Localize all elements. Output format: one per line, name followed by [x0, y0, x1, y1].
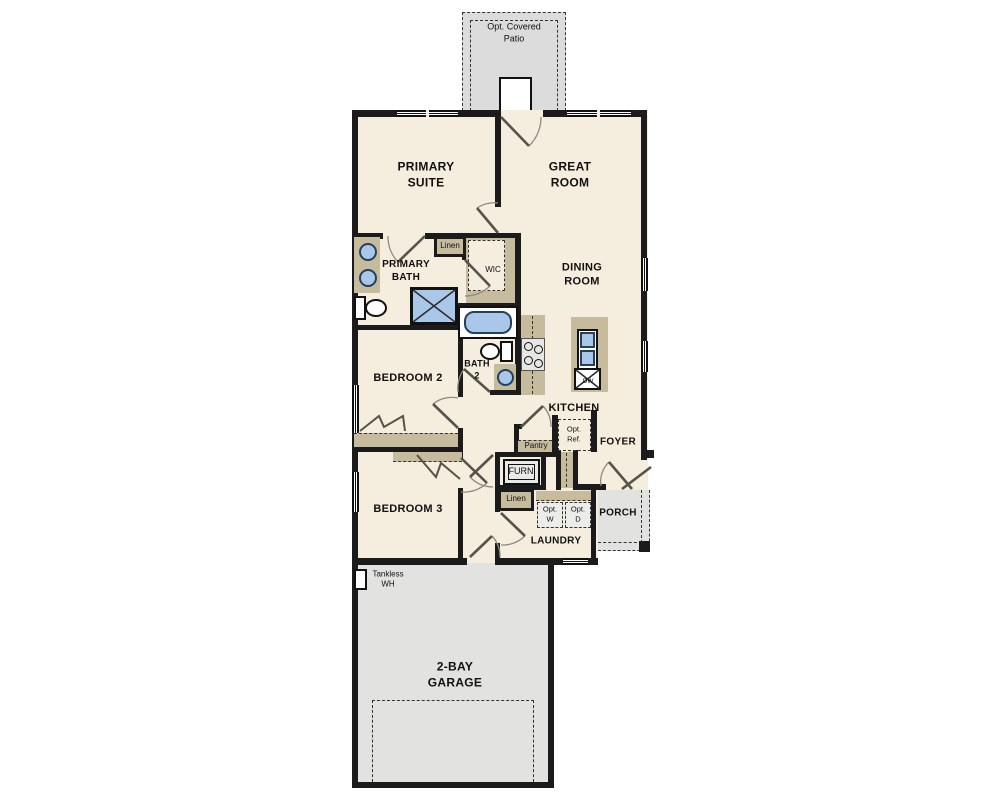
bedroom2-label: BEDROOM 2 [373, 371, 442, 385]
bath2-label: BATH 2 [464, 358, 490, 381]
primary-bath-label: PRIMARY BATH [382, 258, 430, 284]
furnace-label: FURN [509, 466, 534, 478]
pantry-label: Pantry [524, 441, 547, 451]
linen-top-label: Linen [440, 241, 460, 251]
primary-suite-label: PRIMARY SUITE [398, 159, 455, 190]
laundry-label: LAUNDRY [531, 535, 582, 548]
foyer-label: FOYER [600, 436, 636, 449]
wic-label: WIC [485, 265, 501, 275]
bedroom3-label: BEDROOM 3 [373, 502, 442, 516]
shower-x [413, 290, 455, 322]
tankless-label: Tankless WH [372, 570, 403, 591]
dishwasher-label: DW [583, 378, 594, 386]
garage-label: 2-BAY GARAGE [428, 659, 482, 690]
bifold-doors [360, 416, 460, 479]
opt-dryer-label: Opt. D [571, 504, 585, 524]
linen-bottom-label: Linen [506, 494, 526, 504]
annotation-layer [0, 0, 1000, 800]
porch-label: PORCH [599, 507, 637, 520]
opt-washer-label: Opt. W [543, 504, 557, 524]
opt-ref-label: Opt. Ref. [567, 424, 581, 444]
floor-plan: Opt. Covered Patio PRIMARY SUITE GREAT R… [0, 0, 1000, 800]
great-room-label: GREAT ROOM [549, 159, 592, 190]
kitchen-label: KITCHEN [549, 401, 600, 415]
dining-room-label: DINING ROOM [562, 261, 602, 290]
patio-label: Opt. Covered Patio [487, 21, 541, 44]
